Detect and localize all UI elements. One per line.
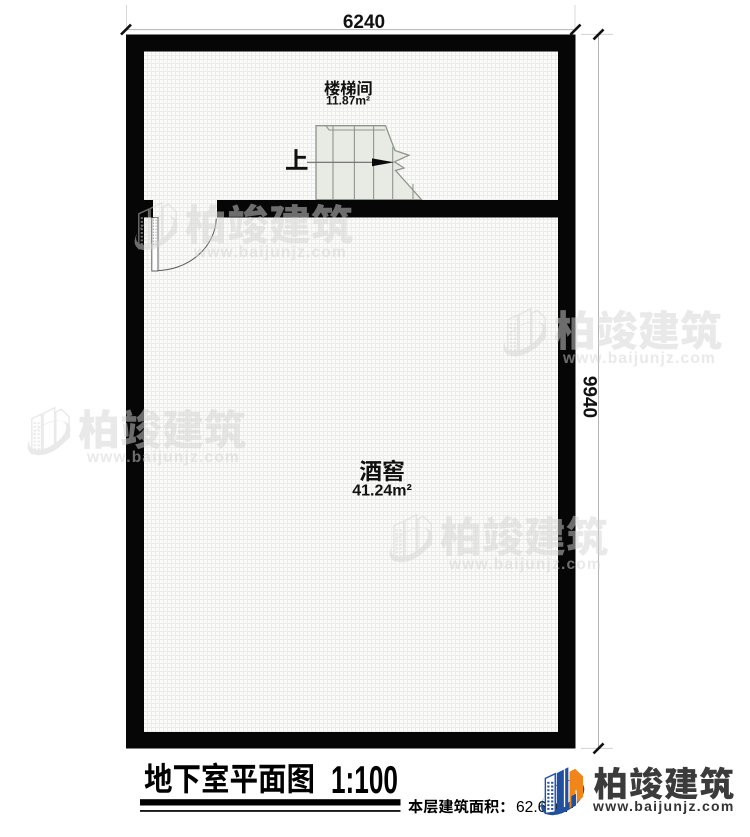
- svg-text:9940: 9940: [579, 376, 600, 418]
- svg-text:www.baijunjz.com: www.baijunjz.com: [193, 244, 347, 261]
- svg-text:www.baijunjz.com: www.baijunjz.com: [86, 449, 240, 466]
- svg-text:11.87m²: 11.87m²: [326, 94, 370, 108]
- svg-text:www.baijunjz.com: www.baijunjz.com: [592, 798, 735, 814]
- svg-text:www.baijunjz.com: www.baijunjz.com: [448, 556, 602, 573]
- svg-text:1:100: 1:100: [331, 758, 398, 801]
- svg-text:41.24m²: 41.24m²: [352, 482, 412, 499]
- svg-text:6240: 6240: [343, 12, 385, 33]
- svg-text:www.baijunjz.com: www.baijunjz.com: [562, 350, 716, 367]
